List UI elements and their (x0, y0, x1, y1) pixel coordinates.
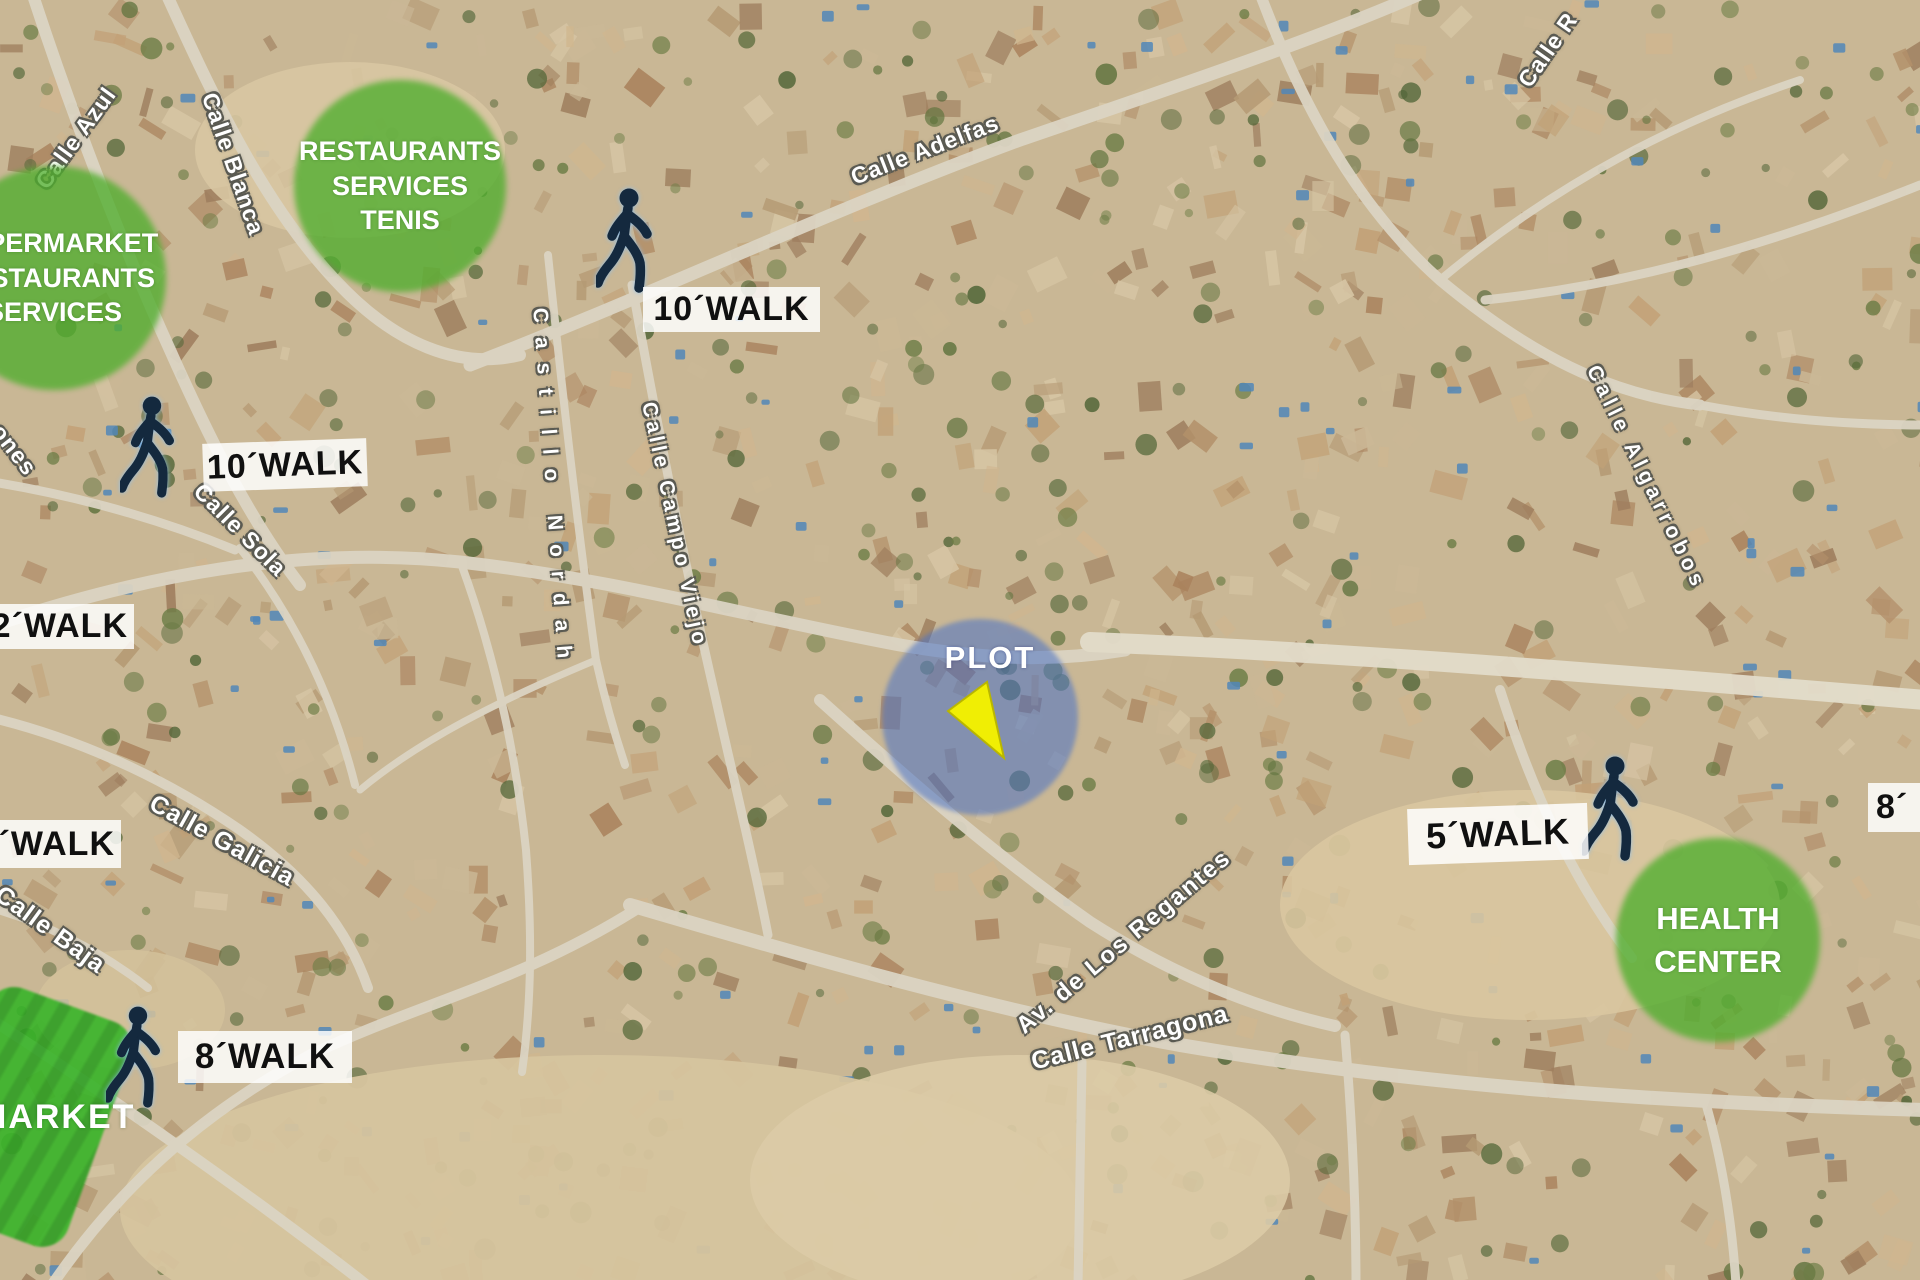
poi-line: CENTER (1654, 940, 1781, 983)
poi-line: RESTAURANTS (299, 134, 501, 169)
poi-circle-restaurants-tenis: RESTAURANTS SERVICES TENIS (294, 80, 506, 292)
aerial-map-image: Calle Azul Calle Blanca Calle Adelfas Ca… (0, 0, 1920, 1280)
walking-person-icon (1582, 754, 1646, 862)
walking-person-icon (106, 1004, 168, 1109)
walk-time-label-left-mid: 2´WALK (0, 604, 134, 649)
poi-line: SERVICES (0, 295, 122, 330)
poi-line: TENIS (360, 203, 440, 238)
walk-time-label-left-upper: 10´WALK (202, 438, 368, 492)
poi-line: SUPERMARKET (0, 226, 158, 261)
walk-time-label-bottom-left: 8´WALK (178, 1031, 352, 1083)
poi-circle-health-center: HEALTH CENTER (1616, 838, 1820, 1042)
walk-time-label-right: 5´WALK (1407, 803, 1589, 865)
walking-person-icon (596, 186, 660, 294)
poi-line: SERVICES (332, 169, 468, 204)
poi-line: RESTAURANTS (0, 261, 155, 296)
poi-line: HEALTH (1656, 897, 1779, 940)
poi-circle-supermarket: SUPERMARKET RESTAURANTS SERVICES (0, 166, 166, 390)
walking-person-icon (120, 394, 182, 499)
plot-arrow-icon (930, 670, 1020, 770)
walk-time-label-left-lower: ´WALK (0, 820, 121, 868)
walk-time-label-right-edge: 8´ (1868, 783, 1920, 832)
walk-time-label-top: 10´WALK (643, 287, 820, 332)
